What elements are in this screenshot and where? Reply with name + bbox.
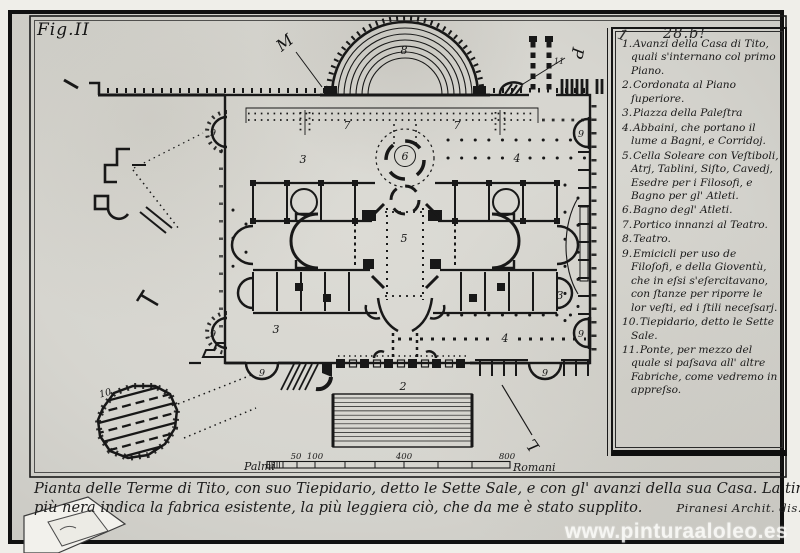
- artist-signature: Piranesi Archit. dis. inc.: [676, 501, 800, 515]
- legend-item-text: Portico innanzi al Teatro.: [633, 219, 768, 231]
- legend-item-text: Avanzi della Casa di Tito, quali s'inter…: [631, 38, 776, 77]
- legend-item-text: Ponte, per mezzo del quale si paſsava al…: [631, 344, 777, 396]
- caption-line-2-text: più nera indica la fabrica esistente, la…: [34, 499, 642, 516]
- caption-line-2: più nera indica la fabrica esistente, la…: [34, 499, 786, 518]
- legend-item-number: 6.: [622, 204, 632, 216]
- legend-item-text: Piazza della Paleſtra: [633, 107, 742, 119]
- legend-item-text: Tiepidario, detto le Sette Sale.: [631, 316, 774, 341]
- legend-list: 1.Avanzi della Casa di Tito, quali s'int…: [622, 38, 779, 398]
- legend-item: 4.Abbaini, che portano il lume a Bagni, …: [622, 122, 779, 149]
- engraving-scan: 8 7 7 3 3 3 4 4 5 6 2 9 9 9 9 9 9 10 11 …: [0, 0, 800, 553]
- legend-item: 5.Cella Soleare con Veſtiboli, Atrj, Tab…: [622, 150, 779, 204]
- legend-item-text: Abbaini, che portano il lume a Bagni, e …: [631, 122, 766, 147]
- legend-item-number: 9.: [622, 248, 632, 260]
- legend-item: 1.Avanzi della Casa di Tito, quali s'int…: [622, 38, 779, 78]
- legend-item: 9.Emicicli per uso de Filoſofi, e della …: [622, 248, 779, 315]
- legend-panel: 1.Avanzi della Casa di Tito, quali s'int…: [611, 27, 787, 456]
- legend-item-number: 5.: [622, 150, 632, 162]
- legend-item-text: Cella Soleare con Veſtiboli, Atrj, Tabli…: [631, 150, 779, 202]
- legend-item-text: Cordonata al Piano ſuperiore.: [631, 79, 736, 104]
- legend-item-number: 10.: [622, 316, 639, 328]
- legend-item-number: 11.: [622, 344, 639, 356]
- legend-item: 2.Cordonata al Piano ſuperiore.: [622, 79, 779, 106]
- legend-item-number: 8.: [622, 233, 632, 245]
- legend-item: 7.Portico innanzi al Teatro.: [622, 219, 779, 232]
- legend-item: 11.Ponte, per mezzo del quale si paſsava…: [622, 344, 779, 398]
- legend-item-text: Teatro.: [633, 233, 671, 245]
- plate-caption: Pianta delle Terme di Tito, con suo Tiep…: [34, 480, 786, 517]
- caption-line-1: Pianta delle Terme di Tito, con suo Tiep…: [34, 480, 786, 499]
- legend-item-number: 2.: [622, 79, 632, 91]
- legend-item: 10.Tiepidario, detto le Sette Sale.: [622, 316, 779, 343]
- legend-item-number: 7.: [622, 219, 632, 231]
- figure-label: Fig.II: [37, 20, 90, 40]
- legend-item-number: 4.: [622, 122, 632, 134]
- legend-item: 8.Teatro.: [622, 233, 779, 246]
- legend-item: 6.Bagno degl' Atleti.: [622, 204, 779, 217]
- legend-item: 3.Piazza della Paleſtra: [622, 107, 779, 120]
- legend-inner-frame: 1.Avanzi della Casa di Tito, quali s'int…: [615, 31, 783, 448]
- legend-item-number: 1.: [622, 38, 632, 50]
- legend-item-text: Bagno degl' Atleti.: [633, 204, 732, 216]
- legend-item-number: 3.: [622, 107, 632, 119]
- watermark: www.pinturaaloleo.es: [565, 520, 788, 544]
- legend-item-text: Emicicli per uso de Filoſofi, e della Gi…: [631, 248, 777, 314]
